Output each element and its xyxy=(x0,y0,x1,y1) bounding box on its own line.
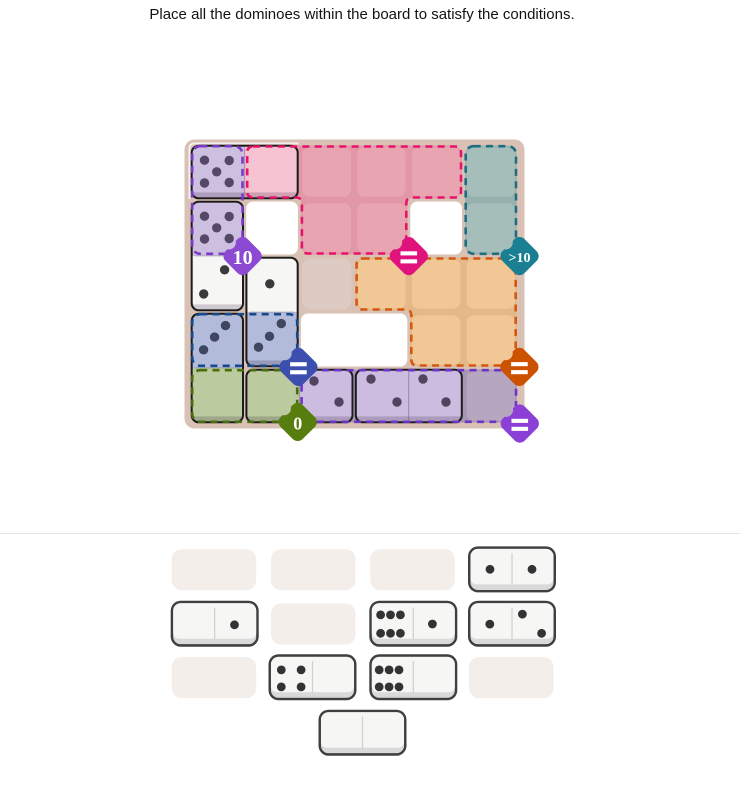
svg-text:0: 0 xyxy=(293,413,302,433)
svg-text:>10: >10 xyxy=(509,251,531,266)
svg-text:10: 10 xyxy=(233,247,253,269)
